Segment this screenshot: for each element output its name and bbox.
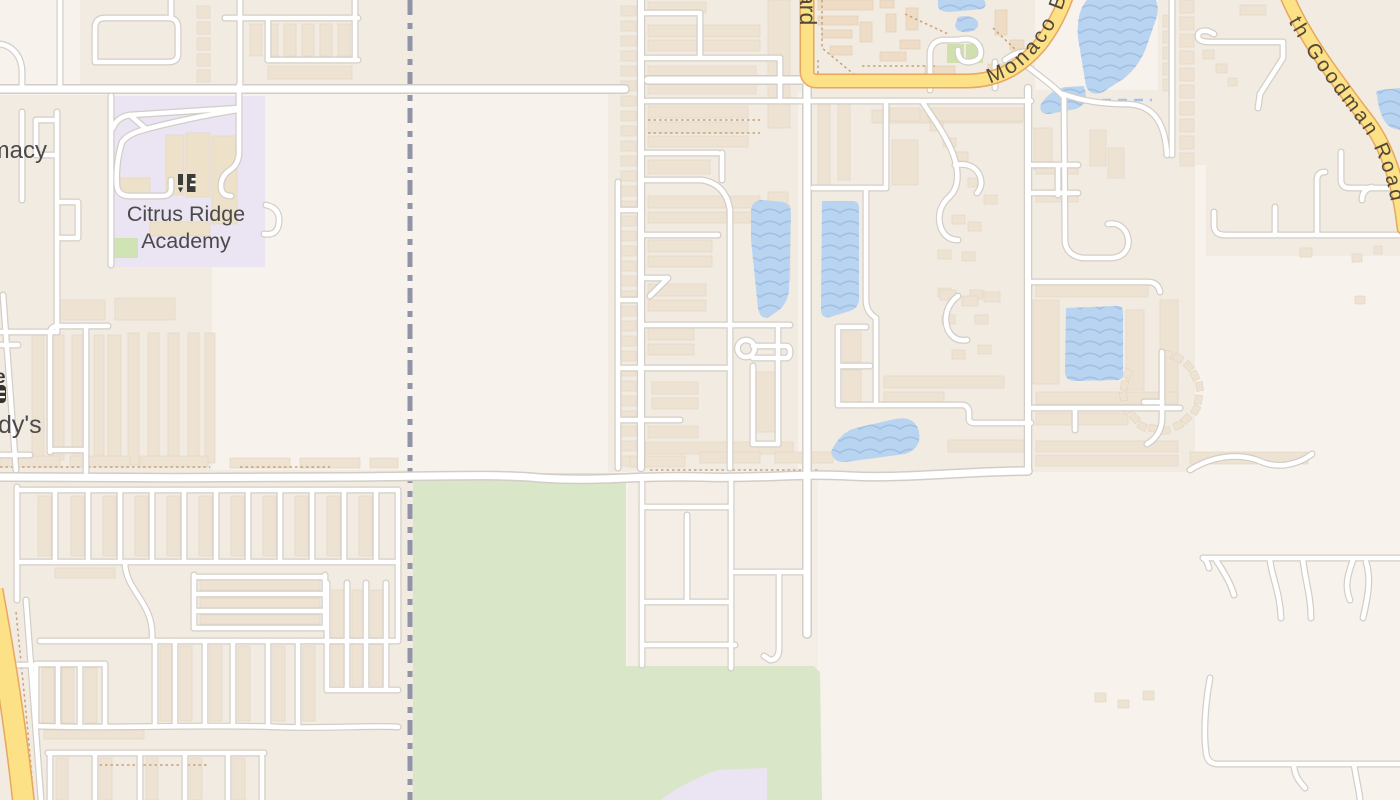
svg-text:e: e bbox=[0, 367, 6, 388]
svg-text:Citrus Ridge: Citrus Ridge bbox=[127, 202, 245, 226]
svg-text:dy's: dy's bbox=[0, 411, 42, 439]
svg-text:Academy: Academy bbox=[141, 229, 231, 253]
svg-text:ard: ard bbox=[795, 0, 821, 25]
svg-text:rmacy: rmacy bbox=[0, 137, 47, 164]
